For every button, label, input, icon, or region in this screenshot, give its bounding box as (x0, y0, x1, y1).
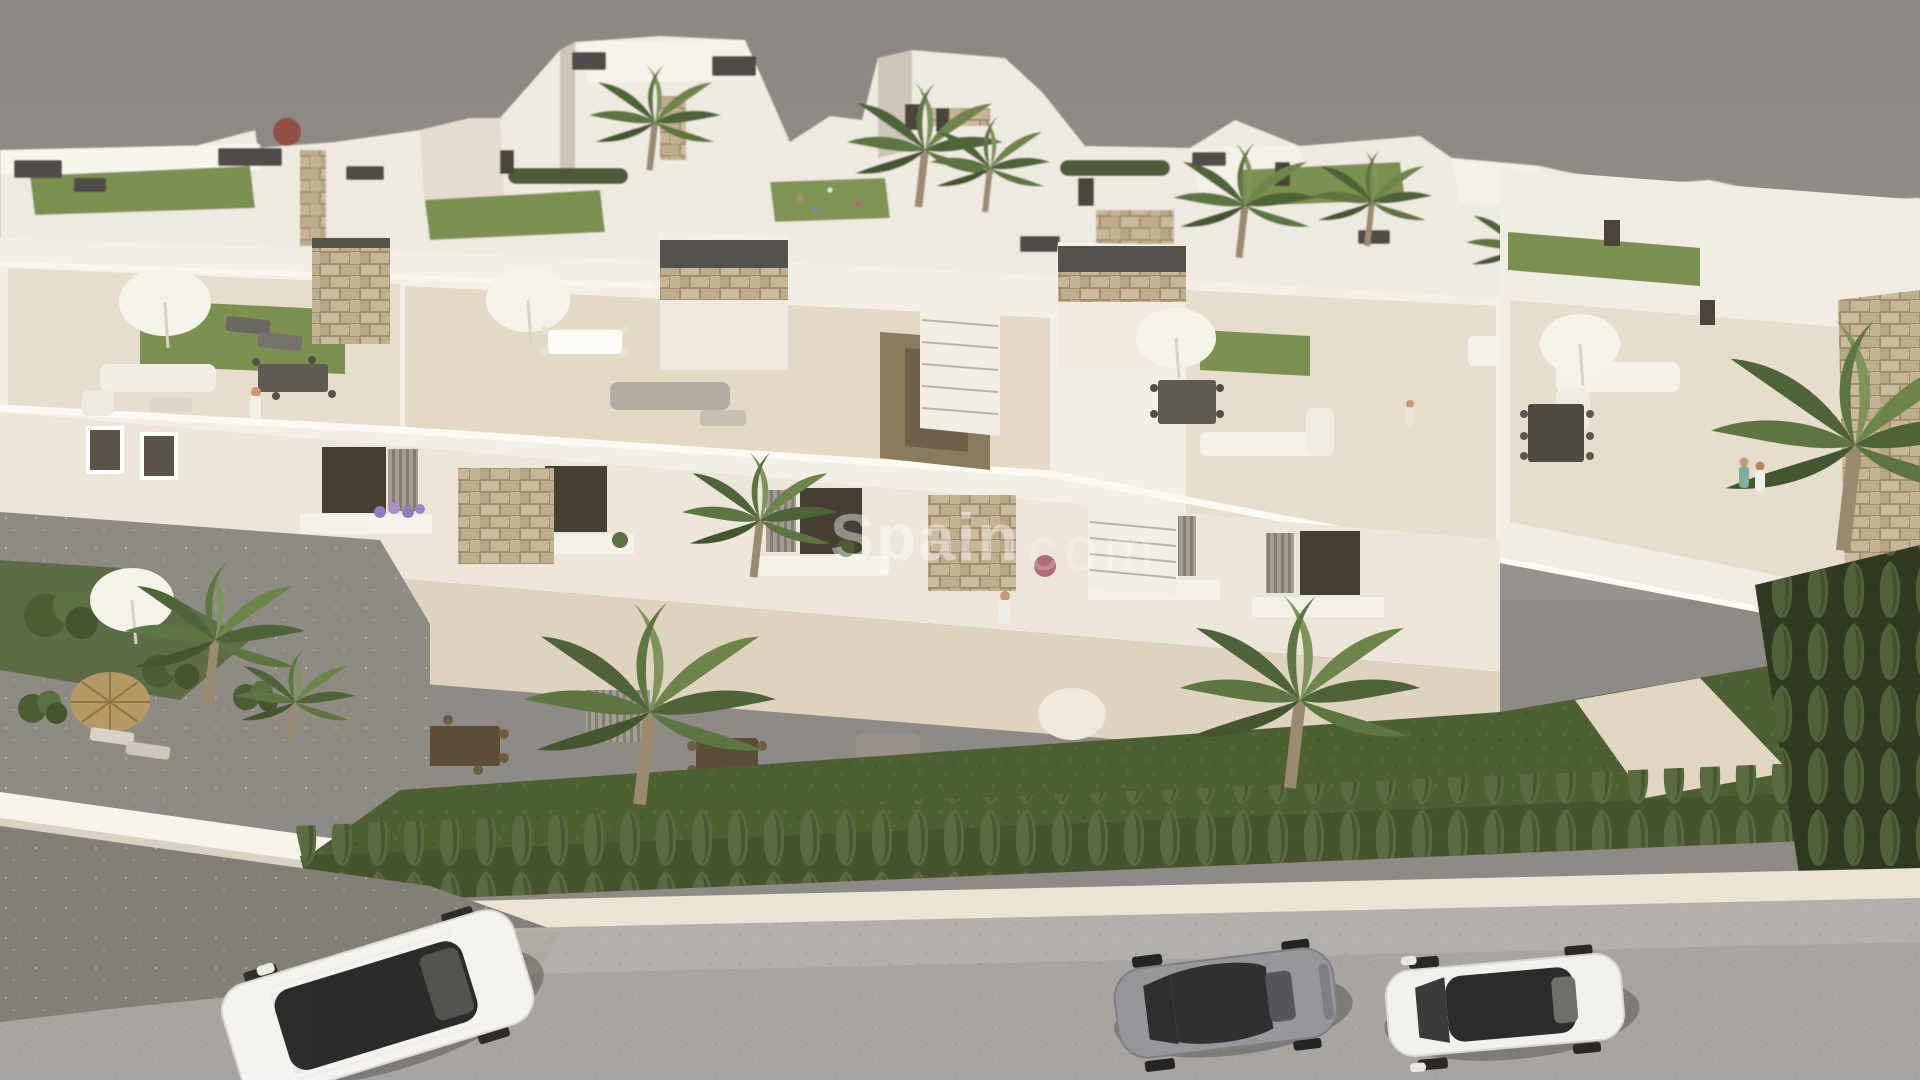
roof-lawn-right (1200, 330, 1310, 376)
person-roof-left (250, 387, 261, 420)
watermark-text-right: com (1028, 516, 1159, 583)
red-tree (273, 118, 301, 146)
balcony-plant (612, 532, 628, 548)
person-ground-center (999, 591, 1010, 624)
window (88, 428, 122, 472)
window (142, 434, 176, 478)
render-canvas: Spain com (0, 0, 1920, 1080)
watermark-text-left: Spain (830, 500, 1020, 574)
render-scene: Spain com (0, 0, 1920, 1080)
parasol-ground (1038, 688, 1106, 740)
terrace-floor-right (1186, 290, 1496, 556)
stair-tower-1 (660, 240, 788, 370)
stone-tower-left (312, 238, 390, 344)
stone-divider (458, 468, 554, 564)
person-balcony-right (1405, 400, 1414, 427)
